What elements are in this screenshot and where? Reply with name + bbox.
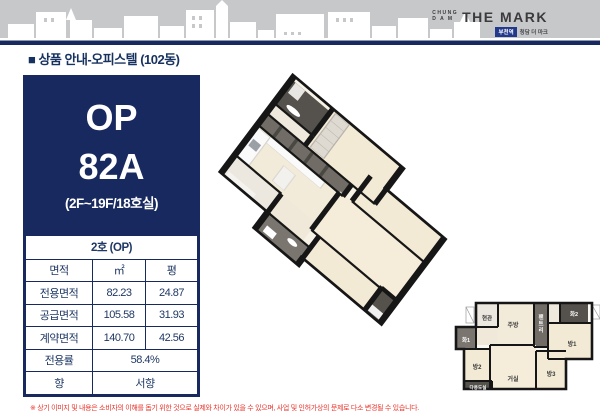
- table-row: 향 서향: [26, 371, 197, 394]
- direction-value: 서향: [92, 371, 197, 394]
- row-m2: 140.70: [92, 326, 145, 349]
- logo-dam-text: D A M: [432, 17, 458, 23]
- room-label-room2: 방2: [473, 363, 483, 371]
- room-floor-hall2: [476, 327, 498, 345]
- key-floorplan: 현관주방팬트리화2방1화1방2거실방3다용도실: [447, 291, 600, 401]
- unit-floors-label: (2F~19F/18호실): [26, 192, 197, 212]
- table-row: 전용면적 82.23 24.87: [26, 281, 197, 304]
- logo-subtitle: 청담 더 마크: [520, 28, 548, 36]
- col-header-m2: ㎡: [92, 259, 145, 282]
- unit-type-label: OP: [26, 96, 197, 139]
- room-label-room3: 방3: [547, 370, 557, 378]
- unit-name-label: 82A: [26, 145, 197, 188]
- room-label-kitchen: 주방: [507, 321, 519, 329]
- area-table: 2호 (OP) 면적 ㎡ 평 전용면적 82.23 24.87 공급면적 105…: [23, 233, 200, 397]
- logo-station-badge: 부천역: [495, 27, 516, 37]
- logo-chungdam: CHUNG D A M: [432, 11, 458, 23]
- col-header-area: 면적: [26, 259, 92, 282]
- key-floorplan-svg: 현관주방팬트리화2방1화1방2거실방3다용도실: [447, 291, 600, 401]
- ratio-value: 58.4%: [92, 349, 197, 372]
- page-title: ■ 상품 안내-오피스텔 (102동): [28, 49, 180, 68]
- room-label-bath1: 화1: [462, 336, 470, 344]
- disclaimer-text: ※ 상기 이미지 및 내용은 소비자의 이해를 돕기 위한 것으로 실제와 차이…: [30, 403, 419, 413]
- room-label-pantry: 트: [538, 320, 543, 327]
- table-row: 계약면적 140.70 42.56: [26, 326, 197, 349]
- table-row: 공급면적 105.58 31.93: [26, 304, 197, 327]
- table-row: 전용률 58.4%: [26, 349, 197, 372]
- row-label: 전용면적: [26, 281, 92, 304]
- table-header-row: 면적 ㎡ 평: [26, 259, 197, 282]
- room-label-pantry: 리: [538, 326, 543, 334]
- room-label-pantry: 팬: [538, 313, 543, 321]
- row-m2: 82.23: [92, 281, 145, 304]
- table-title: 2호 (OP): [26, 236, 197, 259]
- iso-plan-group: [209, 76, 461, 330]
- room-label-living: 거실: [507, 375, 519, 383]
- room-floor-entry: [476, 303, 498, 327]
- room-floor-hall: [548, 303, 560, 323]
- navy-rule: [0, 40, 600, 45]
- unit-info-panel: OP 82A (2F~19F/18호실) 2호 (OP) 면적 ㎡ 평 전용면적…: [23, 75, 200, 397]
- logo-themark-text: THE MARK: [462, 9, 548, 25]
- ratio-label: 전용률: [26, 349, 92, 372]
- unit-type-box: OP 82A (2F~19F/18호실): [23, 75, 200, 233]
- keyplan-group: 현관주방팬트리화2방1화1방2거실방3다용도실: [456, 303, 600, 391]
- brochure-page: CHUNG D A M THE MARK 부천역 청담 더 마크 ■ 상품 안내…: [0, 0, 600, 415]
- room-label-room1: 방1: [568, 340, 578, 348]
- row-m2: 105.58: [92, 304, 145, 327]
- room-label-utility: 다용도실: [470, 384, 487, 391]
- room-label-bath2: 화2: [570, 310, 578, 318]
- room-floor-room3: [536, 351, 566, 389]
- brand-logo: CHUNG D A M THE MARK 부천역 청담 더 마크: [432, 9, 548, 37]
- room-label-entry: 현관: [482, 314, 492, 322]
- row-label: 공급면적: [26, 304, 92, 327]
- row-label: 계약면적: [26, 326, 92, 349]
- direction-label: 향: [26, 371, 92, 394]
